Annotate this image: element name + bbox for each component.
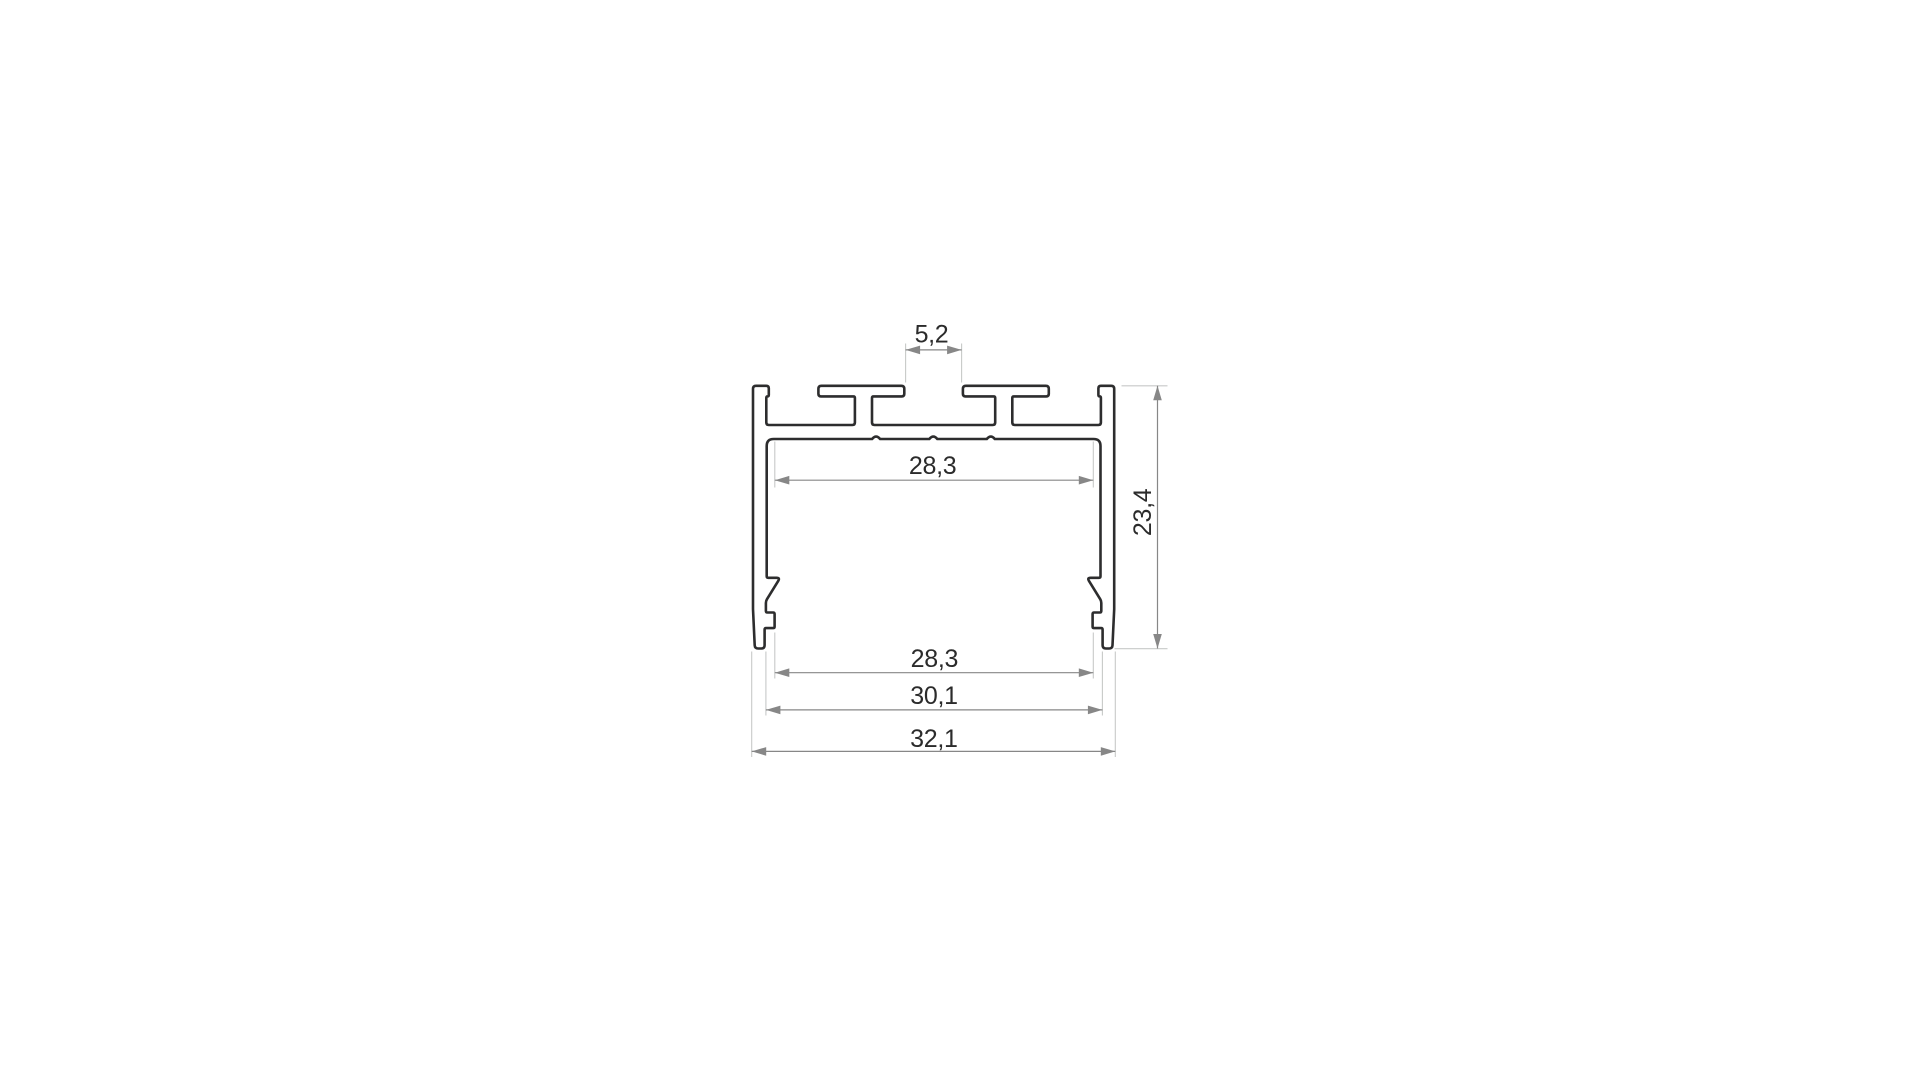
svg-text:5,2: 5,2 [915,321,949,349]
svg-text:32,1: 32,1 [910,725,957,753]
svg-text:28,3: 28,3 [909,452,956,480]
svg-text:30,1: 30,1 [910,682,957,710]
svg-text:23,4: 23,4 [1129,488,1157,536]
svg-text:28,3: 28,3 [911,645,958,673]
